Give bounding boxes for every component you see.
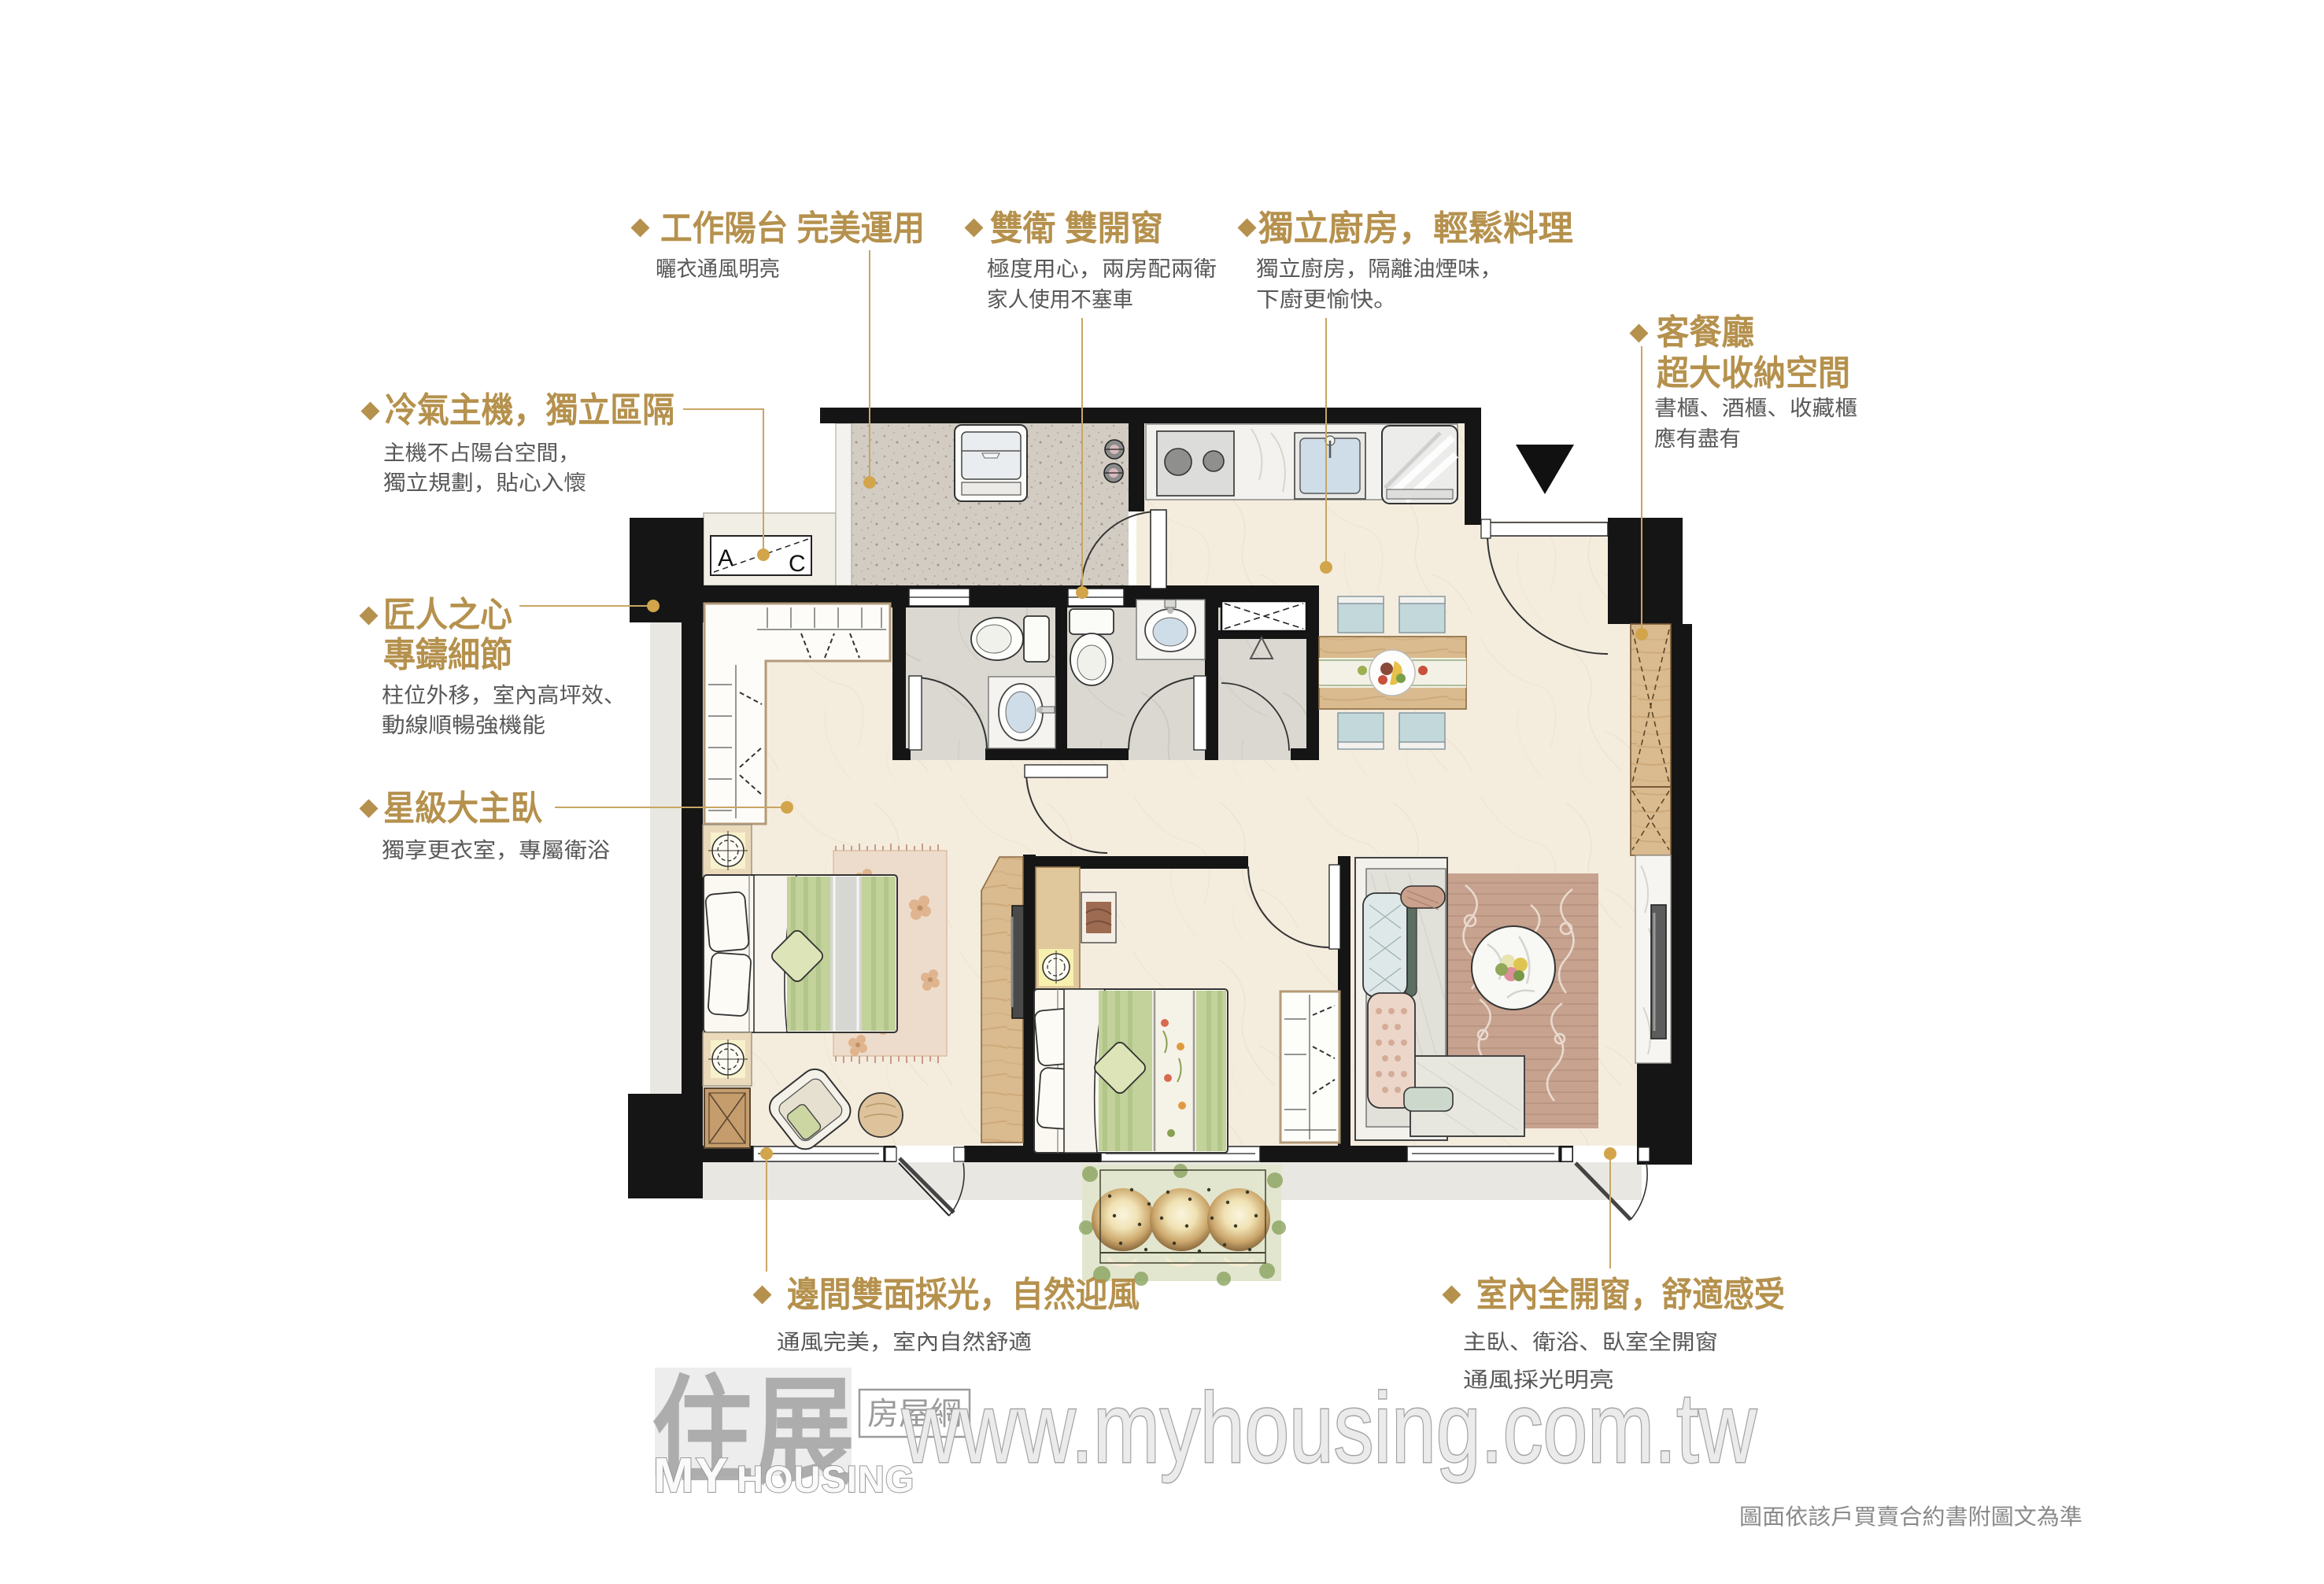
svg-text:動線順暢強機能: 動線順暢強機能 [382,714,545,737]
svg-text:專鑄細節: 專鑄細節 [383,636,512,674]
svg-text:雙衛 雙開窗: 雙衛 雙開窗 [990,209,1163,248]
svg-text:獨享更衣室，專屬衛浴: 獨享更衣室，專屬衛浴 [382,839,610,862]
svg-text:A: A [718,545,733,571]
svg-text:圖面依該戶買賣合約書附圖文為準: 圖面依該戶買賣合約書附圖文為準 [1739,1505,2082,1529]
svg-text:匠人之心: 匠人之心 [383,596,512,634]
svg-text:獨立規劃，貼心入懷: 獨立規劃，貼心入懷 [383,471,586,495]
svg-text:曬衣通風明亮: 曬衣通風明亮 [656,257,780,281]
svg-text:書櫃、酒櫃、收藏櫃: 書櫃、酒櫃、收藏櫃 [1654,397,1857,420]
svg-text:室內全開窗，舒適感受: 室內全開窗，舒適感受 [1476,1275,1785,1314]
svg-text:主臥、衛浴、臥室全開窗: 主臥、衛浴、臥室全開窗 [1463,1331,1718,1354]
svg-text:邊間雙面採光，自然迎風: 邊間雙面採光，自然迎風 [787,1276,1140,1314]
svg-text:客餐廳: 客餐廳 [1657,313,1754,352]
svg-text:冷氣主機，獨立區隔: 冷氣主機，獨立區隔 [385,391,674,430]
svg-text:應有盡有: 應有盡有 [1654,427,1741,451]
svg-text:超大收納空間: 超大收納空間 [1657,354,1850,393]
svg-text:HOUSING: HOUSING [737,1458,914,1500]
svg-text:C: C [789,551,806,577]
svg-text:家人使用不塞車: 家人使用不塞車 [987,288,1133,312]
svg-text:工作陽台 完美運用: 工作陽台 完美運用 [660,209,925,248]
svg-text:柱位外移，室內高坪效、: 柱位外移，室內高坪效、 [382,684,626,707]
svg-text:主機不占陽台空間，: 主機不占陽台空間， [383,441,580,465]
svg-text:MY: MY [653,1449,730,1503]
svg-text:通風完美，室內自然舒適: 通風完美，室內自然舒適 [777,1331,1032,1354]
svg-text:星級大主臥: 星級大主臥 [383,789,542,828]
svg-text:獨立廚房，輕鬆料理: 獨立廚房，輕鬆料理 [1258,209,1573,248]
svg-text:www.myhousing.com.tw: www.myhousing.com.tw [901,1372,1757,1483]
svg-text:獨立廚房，隔離油煙味，: 獨立廚房，隔離油煙味， [1256,257,1502,281]
svg-text:下廚更愉快。: 下廚更愉快。 [1256,288,1397,312]
svg-text:極度用心，兩房配兩衛: 極度用心，兩房配兩衛 [987,257,1217,281]
